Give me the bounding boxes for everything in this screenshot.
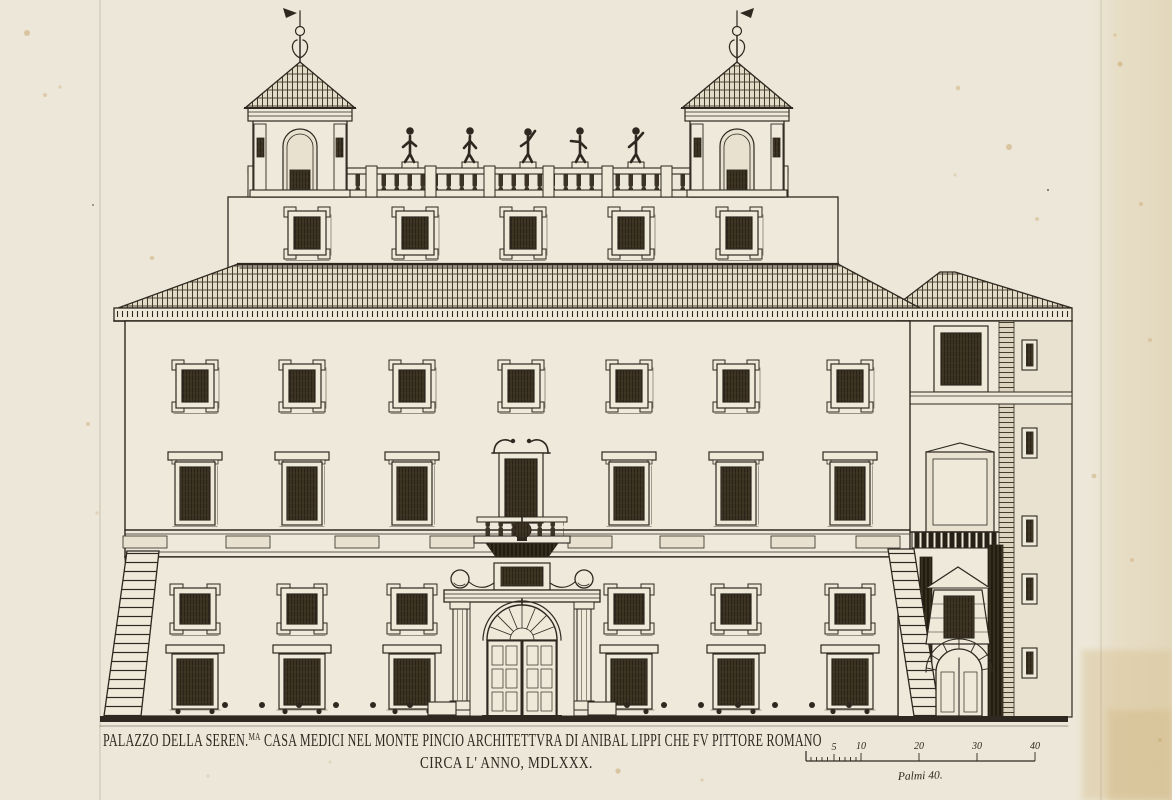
svg-text:5: 5	[832, 742, 837, 753]
portal-column-left	[450, 602, 470, 710]
attic-window	[284, 207, 331, 261]
wing-upper-window	[934, 326, 988, 392]
basement-square-window	[711, 584, 761, 636]
caption-line-2: CIRCA L' ANNO, MDLXXX.	[420, 754, 593, 773]
eaves-cornice	[114, 308, 1072, 321]
wing-side-face	[1012, 321, 1072, 717]
attic-window	[716, 207, 763, 261]
svg-text:30: 30	[971, 741, 982, 752]
ball-finial	[451, 570, 469, 588]
svg-text:10: 10	[856, 741, 866, 752]
wing-balcony	[910, 532, 998, 548]
upper-window	[389, 360, 436, 414]
main-roof	[118, 264, 920, 308]
slit-window	[1022, 516, 1037, 546]
piano-nobile-window	[168, 452, 222, 527]
piano-nobile-window	[709, 452, 763, 527]
basement-lower-window	[166, 645, 224, 714]
attic-window	[608, 207, 655, 261]
piano-nobile-window	[385, 452, 439, 527]
basement-square-window	[170, 584, 220, 636]
bench	[428, 702, 456, 715]
engraving-page: PALAZZO DELLA SEREN.MA CASA MEDICI NEL M…	[0, 0, 1172, 800]
slit-window	[1022, 648, 1037, 678]
svg-text:20: 20	[914, 741, 924, 752]
wing-string-course	[898, 392, 1072, 404]
upper-window	[713, 360, 760, 414]
slit-window	[1022, 340, 1037, 370]
entrance-portal	[428, 563, 616, 716]
basement-square-window	[604, 584, 654, 636]
basement-lower-window	[273, 645, 331, 714]
slit-window	[1022, 428, 1037, 458]
portal-door	[488, 641, 556, 716]
shadow-recess	[988, 545, 1003, 716]
basement-square-window	[825, 584, 875, 636]
wing-middle-recess	[926, 443, 994, 532]
scale-unit-label: Palmi 40.	[897, 769, 943, 783]
basement-square-window	[277, 584, 327, 636]
piano-nobile-window	[275, 452, 329, 527]
upper-window	[606, 360, 653, 414]
piano-nobile-window	[823, 452, 877, 527]
bench	[588, 702, 616, 715]
attic-window	[392, 207, 439, 261]
wing-portal-window	[944, 596, 974, 638]
slit-window	[1022, 574, 1037, 604]
portal-column-right	[574, 602, 594, 710]
basement-square-window	[387, 584, 437, 636]
caption-line-1: PALAZZO DELLA SEREN.MA CASA MEDICI NEL M…	[103, 731, 822, 751]
upper-window	[172, 360, 219, 414]
ball-finial	[575, 570, 593, 588]
balcony-urn	[513, 522, 531, 538]
upper-window	[827, 360, 874, 414]
upper-window	[279, 360, 326, 414]
piano-nobile-window	[602, 452, 656, 527]
attic-window	[500, 207, 547, 261]
upper-window	[498, 360, 545, 414]
svg-text:40: 40	[1030, 741, 1040, 752]
